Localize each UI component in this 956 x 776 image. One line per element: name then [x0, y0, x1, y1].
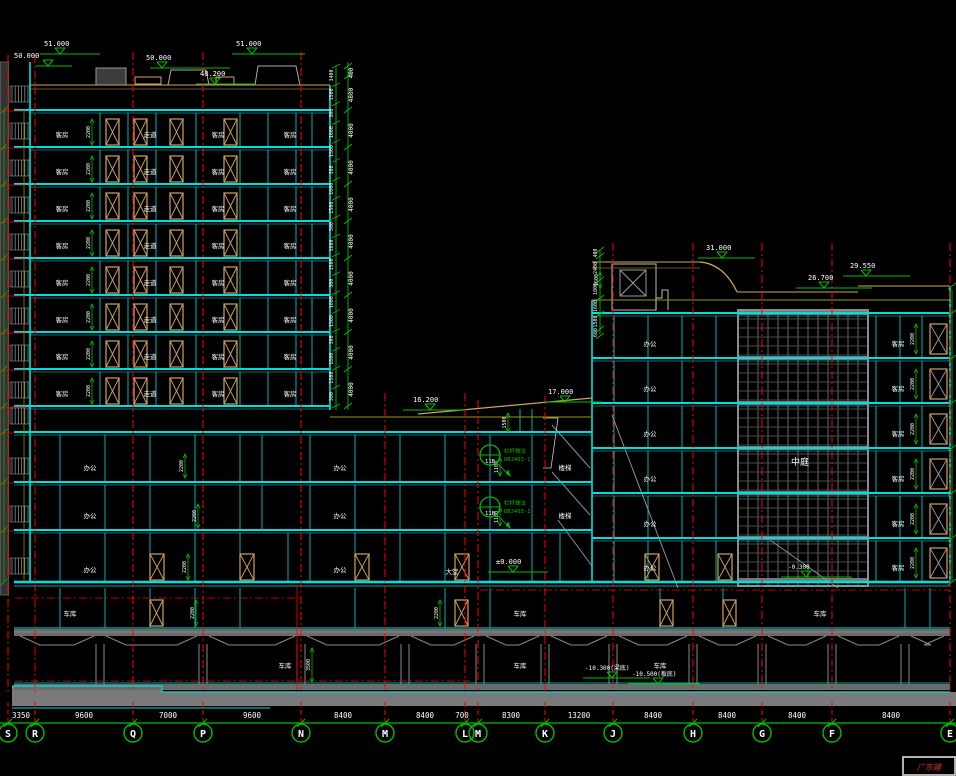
room-label: 走道	[144, 204, 158, 213]
grid-span-dim: 8400	[718, 711, 737, 720]
dim-text: 4000	[348, 123, 355, 138]
dim-text: 3400	[329, 69, 335, 81]
elevation-value: 26.700	[808, 274, 833, 282]
dim-text: 2400	[593, 262, 599, 274]
dim-text: 4000	[348, 271, 355, 286]
dim-text: 2200	[86, 237, 92, 249]
room-label: 客房	[212, 315, 225, 324]
room-label: 客房	[212, 352, 225, 361]
dim-text: 2200	[910, 513, 916, 525]
room-label: 客房	[892, 384, 905, 393]
room-label: 大堂	[446, 567, 460, 576]
dim-text: 2200	[86, 385, 92, 397]
dim-text: 1500	[329, 145, 335, 157]
dim-text: 1500	[329, 315, 335, 327]
room-label: 走道	[144, 130, 158, 139]
room-label: 客房	[892, 429, 905, 438]
dim-text: 300	[329, 392, 335, 401]
room-label: 客房	[212, 278, 225, 287]
dim-text: 2200	[910, 333, 916, 345]
dim-text: 300	[329, 335, 335, 344]
elevation-value: 17.000	[548, 388, 573, 396]
dim-text: 300	[329, 222, 335, 231]
grid-bubble-label: J	[610, 729, 616, 740]
dim-text: 300	[329, 109, 335, 118]
room-label: 客房	[284, 241, 297, 250]
grid-bubble-label: G	[759, 729, 765, 740]
grid-span-dim: 7000	[159, 711, 178, 720]
grid-bubble-label: R	[32, 729, 39, 740]
grid-bubble-label: P	[200, 729, 206, 740]
room-label: 客房	[284, 278, 297, 287]
room-label: 客房	[212, 241, 225, 250]
dim-text: 1500	[329, 258, 335, 270]
room-label: 楼梯	[559, 511, 573, 520]
room-label: 客房	[284, 167, 297, 176]
room-label: 办公	[84, 565, 98, 574]
room-label: 车库	[64, 609, 78, 618]
dim-text: 1600	[329, 296, 335, 308]
grid-span-dim: 9600	[75, 711, 94, 720]
room-label: 客房	[56, 315, 69, 324]
room-label: 办公	[84, 511, 98, 520]
room-label: 走道	[144, 278, 158, 287]
elevation-value: 51.000	[236, 40, 261, 48]
room-label: 客房	[892, 474, 905, 483]
elevation-value: 29.550	[850, 262, 875, 270]
grid-bubble-label: E	[947, 729, 953, 740]
dim-text: 1600	[329, 183, 335, 195]
room-label: 办公	[334, 511, 348, 520]
room-label: 办公	[644, 384, 658, 393]
dim-text: 4000	[348, 160, 355, 175]
dim-text: 4000	[348, 345, 355, 360]
dim-text: 3500	[306, 659, 312, 671]
grid-bubble-label: F	[829, 729, 835, 740]
detail-note: 栏杆做法	[504, 447, 527, 455]
left-facade-strip	[1, 62, 9, 595]
grid-bubble-label: K	[542, 729, 548, 740]
elevation-value: 50.000	[14, 52, 39, 60]
grid-bubble-label: M	[382, 729, 388, 740]
grid-span-dim: 8400	[416, 711, 435, 720]
room-label: 客房	[56, 389, 69, 398]
cad-viewport[interactable]: SRQPNMLMKJHGFE33509600700096008400840070…	[0, 0, 956, 776]
dim-text: 2200	[179, 460, 185, 472]
dim-text: 300	[329, 165, 335, 174]
room-label: 办公	[84, 463, 98, 472]
dim-text: 2200	[86, 200, 92, 212]
room-label: 走道	[144, 389, 158, 398]
dim-text: 1500	[329, 372, 335, 384]
grid-bubble-label: L	[462, 729, 468, 740]
dim-text: 4000	[348, 382, 355, 397]
room-label: 办公	[334, 463, 348, 472]
grid-bubble-label: M	[475, 729, 481, 740]
room-label: 走道	[144, 315, 158, 324]
dim-text: 2200	[192, 510, 198, 522]
room-label: 车库	[514, 661, 528, 670]
grid-span-dim: 8400	[882, 711, 901, 720]
detail-id: 11B	[485, 511, 496, 517]
room-label: 办公	[644, 563, 658, 572]
room-label: 客房	[284, 130, 297, 139]
dim-text: 1500	[329, 88, 335, 100]
elevation-value: -0.300	[788, 564, 810, 571]
room-label: 车库	[654, 661, 668, 670]
dim-text: 4800	[348, 87, 355, 102]
room-label: 客房	[284, 352, 297, 361]
dim-text: 2200	[86, 126, 92, 138]
room-label: 办公	[644, 474, 658, 483]
elevation-value: 48.200	[200, 70, 225, 78]
dim-text: 1600	[329, 353, 335, 365]
grid-bubble-label: S	[5, 729, 11, 740]
dim-text: 2200	[910, 423, 916, 435]
dim-text: 1600	[593, 300, 599, 312]
roof-equipment	[96, 68, 126, 85]
room-label: 客房	[56, 130, 69, 139]
dim-text: 400	[348, 67, 355, 78]
dim-text: 300	[329, 279, 335, 288]
elevation-value: ±0.000	[496, 558, 521, 566]
dim-text: 4000	[348, 308, 355, 323]
room-label: 楼梯	[559, 463, 573, 472]
dim-text: 2200	[910, 557, 916, 569]
room-label: 客房	[284, 204, 297, 213]
grid-bubble-label: H	[690, 729, 696, 740]
room-label: 客房	[892, 339, 905, 348]
room-label: 办公	[644, 519, 658, 528]
dim-text: 1500	[329, 202, 335, 214]
detail-code: DBJ403-1	[504, 509, 531, 515]
room-label: 走道	[144, 167, 158, 176]
dim-text: 1600	[594, 274, 600, 286]
grid-span-dim: 13200	[568, 711, 591, 720]
room-label: 车库	[814, 609, 828, 618]
detail-id: 11B	[485, 459, 496, 465]
grid-span-dim: 8400	[788, 711, 807, 720]
grid-span-dim: 8400	[334, 711, 353, 720]
room-label: 客房	[892, 563, 905, 572]
room-label: 客房	[212, 204, 225, 213]
elevation-value: -10.300(梁底)	[585, 664, 630, 672]
title-block-text: 广东建	[916, 763, 943, 772]
room-label: 办公	[644, 339, 658, 348]
dim-text: 4000	[348, 234, 355, 249]
detail-note: 栏杆做法	[504, 499, 527, 507]
dim-text: 1500	[502, 416, 508, 428]
grid-span-dim: 3350	[12, 711, 31, 720]
dim-text: 2200	[190, 607, 196, 619]
room-label: 客房	[892, 519, 905, 528]
room-label: 客房	[212, 130, 225, 139]
dim-text: 1600	[329, 239, 335, 251]
room-label: 客房	[284, 315, 297, 324]
basement-slab-band	[14, 684, 950, 690]
room-label: 客房	[284, 389, 297, 398]
dim-text: 2200	[86, 163, 92, 175]
dim-text: 2200	[910, 468, 916, 480]
detail-code: DBJ403-1	[504, 457, 531, 463]
dim-text: 2200	[86, 274, 92, 286]
elevation-value: 51.000	[44, 40, 69, 48]
room-label: 办公	[644, 429, 658, 438]
dim-text: 2200	[86, 311, 92, 323]
dim-text: 2200	[910, 378, 916, 390]
basement-slab-band	[14, 629, 950, 636]
grid-span-dim: 8400	[644, 711, 663, 720]
dim-text: 400	[593, 248, 599, 257]
room-label: 办公	[334, 565, 348, 574]
dim-text: 1600	[329, 126, 335, 138]
grid-bubble-label: N	[298, 729, 304, 740]
dim-text: 1500	[593, 315, 599, 327]
dim-text: 4000	[348, 197, 355, 212]
room-label: 走道	[144, 241, 158, 250]
cad-drawing-canvas[interactable]: SRQPNMLMKJHGFE33509600700096008400840070…	[0, 0, 956, 776]
elevation-value: 50.000	[146, 54, 171, 62]
grid-span-dim: 700	[455, 711, 469, 720]
room-label: 车库	[514, 609, 528, 618]
room-label: 客房	[56, 167, 69, 176]
room-label: 客房	[56, 278, 69, 287]
grid-span-dim: 8300	[502, 711, 521, 720]
dim-text: 600	[593, 328, 599, 337]
grid-bubble-label: Q	[130, 729, 136, 740]
elevation-value: -10.500(板底)	[632, 670, 677, 678]
room-label: 车库	[279, 661, 293, 670]
room-label: 客房	[56, 352, 69, 361]
room-label: 走道	[144, 352, 158, 361]
elevation-value: 31.000	[706, 244, 731, 252]
room-label: 客房	[212, 389, 225, 398]
room-label: 中庭	[791, 456, 809, 468]
elevation-value: 16.200	[413, 396, 438, 404]
foundation-raft	[12, 692, 956, 706]
room-label: 客房	[56, 241, 69, 250]
dim-text: 2200	[86, 348, 92, 360]
dim-text: 2200	[434, 607, 440, 619]
room-label: 客房	[56, 204, 69, 213]
room-label: 客房	[212, 167, 225, 176]
title-block: 广东建	[903, 757, 955, 775]
grid-span-dim: 9600	[243, 711, 262, 720]
dim-text: 2200	[182, 561, 188, 573]
